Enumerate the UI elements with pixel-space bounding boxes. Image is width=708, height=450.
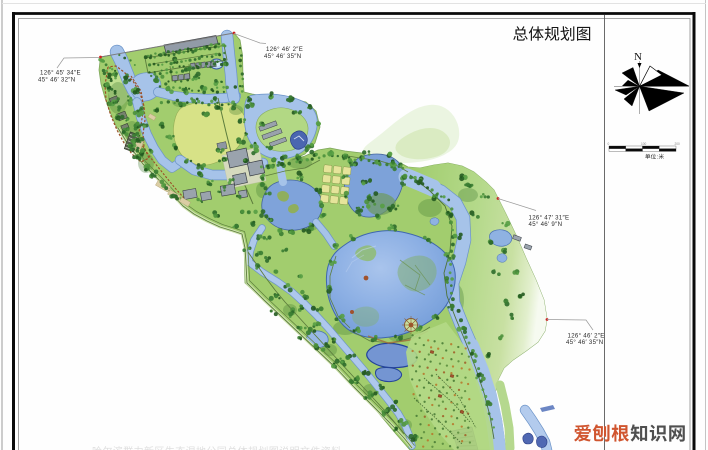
svg-text:200: 200 <box>675 142 681 146</box>
svg-text:0: 0 <box>608 142 610 146</box>
svg-text:100: 100 <box>641 142 647 146</box>
svg-text:45° 46′ 35″N: 45° 46′ 35″N <box>264 53 301 60</box>
svg-text:N: N <box>634 51 642 63</box>
svg-text:45° 46′ 35″N: 45° 46′ 35″N <box>566 339 603 346</box>
svg-text:45° 46′ 9″N: 45° 46′ 9″N <box>529 221 563 228</box>
svg-text:45° 46′ 32″N: 45° 46′ 32″N <box>38 77 75 84</box>
svg-text:126° 46′ 2″E: 126° 46′ 2″E <box>266 46 303 53</box>
svg-text:126° 45′ 34″E: 126° 45′ 34″E <box>40 70 81 77</box>
